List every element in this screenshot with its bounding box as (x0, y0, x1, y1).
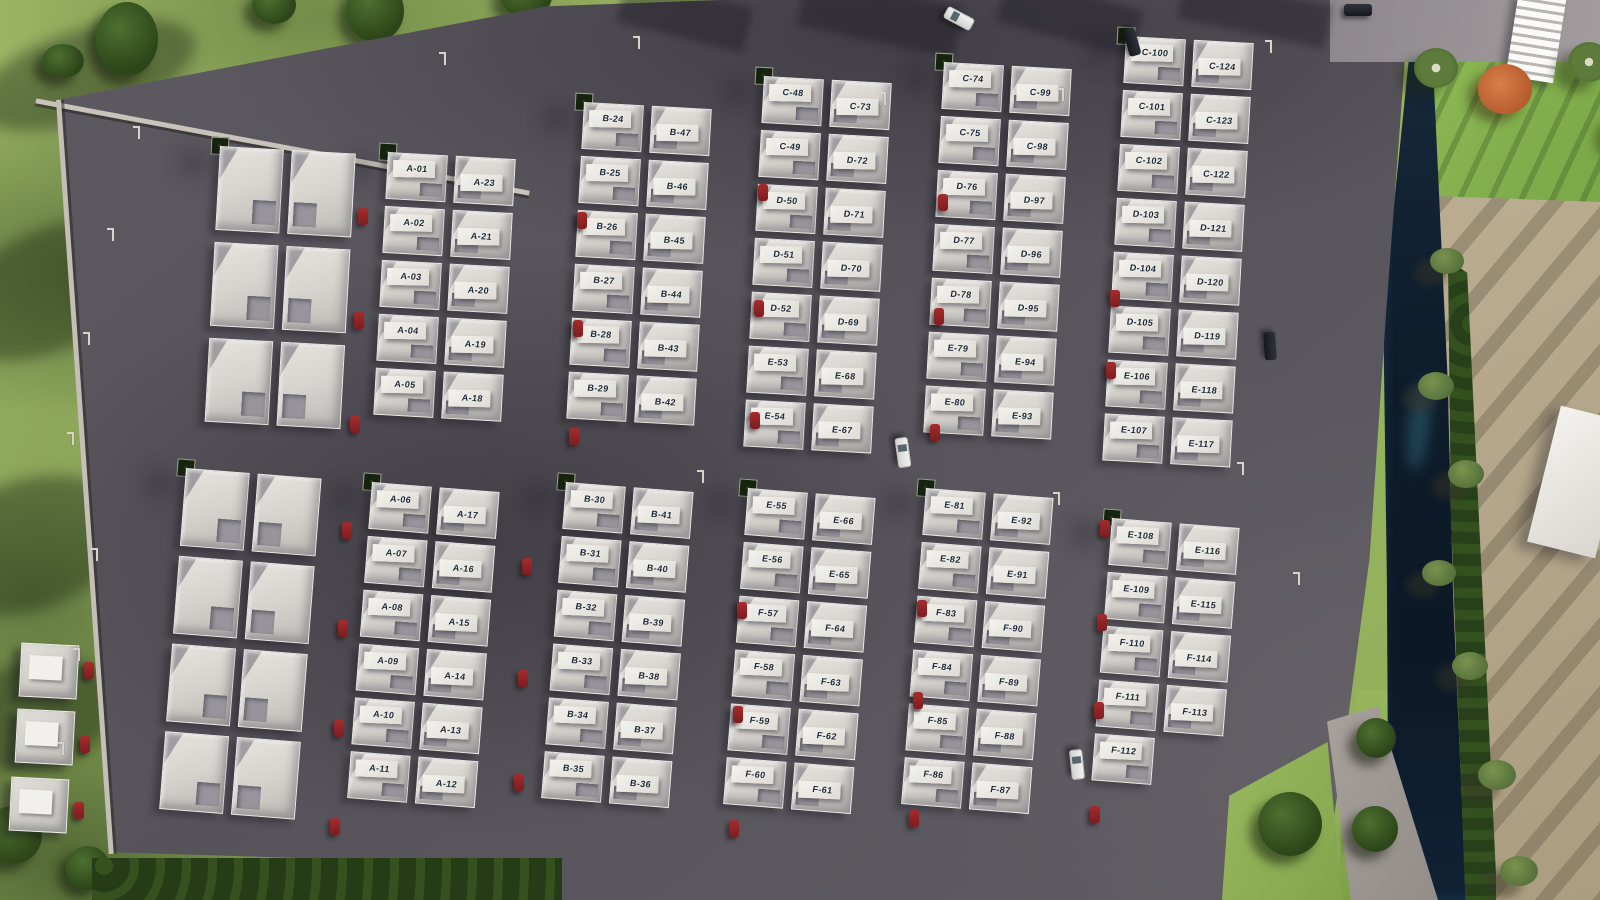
house-unit-D-95: D-95 (997, 281, 1060, 331)
roof-courtyard (410, 344, 433, 359)
house-unit-E-56: E-56 (740, 542, 804, 594)
car-red-parked (1110, 290, 1120, 307)
street-lamp (1270, 40, 1272, 53)
house-unit-C-124: C-124 (1191, 40, 1254, 90)
house-unit-B-39: B-39 (622, 595, 686, 647)
unit-label: B-43 (657, 342, 680, 353)
house-unit-F-114: F-114 (1168, 631, 1232, 683)
car-red-parked (938, 194, 948, 211)
duplex-row: E-79E-94 (926, 332, 1056, 386)
roof-courtyard (956, 519, 979, 534)
roof-courtyard (774, 573, 797, 588)
roof-courtyard (251, 200, 276, 226)
house-unit-E-79: E-79 (926, 332, 989, 382)
unit-label: D-97 (1023, 195, 1046, 206)
street-lamp (1058, 492, 1060, 505)
house-unit-D-103: D-103 (1114, 198, 1177, 248)
roof-courtyard (609, 241, 632, 256)
unit-label: C-99 (1029, 87, 1052, 98)
duplex-row: C-49D-72 (758, 130, 888, 184)
duplex-row: C-102C-122 (1117, 144, 1247, 198)
car-red-parked (84, 662, 94, 679)
unit-label: F-57 (757, 607, 779, 618)
duplex-row: D-76D-97 (935, 170, 1065, 224)
unit-label: A-02 (403, 217, 426, 228)
unit-label: B-29 (587, 383, 610, 394)
roof-courtyard (770, 627, 793, 642)
house-unit-F-58: F-58 (732, 650, 796, 702)
house-unit-B-29: B-29 (566, 372, 629, 422)
duplex-row: B-32B-39 (554, 590, 685, 647)
unit-label: A-23 (473, 177, 496, 188)
duplex-row: F-84F-89 (910, 650, 1041, 707)
duplex-row: A-09A-14 (356, 644, 487, 701)
car-red-parked (80, 736, 90, 753)
duplex-row: F-60F-61 (723, 757, 854, 814)
car-red-parked (909, 810, 919, 827)
roof-courtyard (1145, 282, 1168, 297)
unit-label: D-50 (776, 195, 799, 206)
house-unit (205, 338, 274, 425)
house-unit-B-36: B-36 (609, 757, 673, 809)
house-unit-B-42: B-42 (634, 375, 697, 425)
tree (42, 44, 84, 78)
unit-label: A-21 (470, 231, 493, 242)
site-plan-render: A-01A-23A-02A-21A-03A-20A-04A-19A-05A-18… (0, 0, 1600, 900)
unit-label: D-96 (1020, 249, 1043, 260)
unit-label: B-25 (599, 167, 622, 178)
unit-label: D-120 (1196, 276, 1224, 287)
house-unit-F-86: F-86 (901, 757, 965, 809)
house-unit-E-66: E-66 (812, 493, 876, 545)
car-red-parked (569, 428, 579, 445)
house-unit-F-113: F-113 (1163, 685, 1227, 737)
roof-courtyard (202, 694, 227, 719)
duplex-row: D-51D-70 (752, 238, 882, 292)
unit-label: A-15 (448, 616, 471, 628)
house-unit-C-122: C-122 (1185, 148, 1248, 198)
house-unit-B-25: B-25 (578, 156, 641, 206)
house-unit-A-12: A-12 (415, 757, 479, 809)
duplex-row: D-104D-120 (1111, 252, 1241, 306)
roof-courtyard (1136, 444, 1159, 459)
unit-label: F-58 (753, 661, 775, 672)
house-unit-B-43: B-43 (637, 321, 700, 371)
duplex-row (159, 731, 301, 819)
duplex-row: F-112 (1091, 733, 1222, 790)
house-unit-F-63: F-63 (799, 655, 863, 707)
house-unit-D-119: D-119 (1176, 309, 1239, 359)
duplex-row (215, 146, 355, 237)
roof-courtyard (282, 394, 307, 420)
unit-label: F-85 (927, 715, 949, 726)
unit-label: A-06 (389, 494, 412, 506)
roof-courtyard (1125, 765, 1148, 780)
house-unit-E-94: E-94 (994, 335, 1057, 385)
house-unit-E-67: E-67 (811, 403, 874, 453)
tree (1356, 718, 1396, 758)
duplex-row: E-81E-92 (922, 488, 1053, 545)
house-unit-D-120: D-120 (1179, 255, 1242, 305)
roof-courtyard (216, 519, 241, 544)
unit-label: C-75 (959, 127, 982, 138)
street-lamp (62, 742, 64, 755)
street-lamp (702, 470, 704, 483)
shrub (1500, 856, 1538, 886)
house-unit-F-64: F-64 (804, 601, 868, 653)
car-red-parked (1100, 520, 1110, 537)
duplex-row: C-74C-99 (941, 62, 1071, 116)
duplex-row (166, 643, 308, 731)
house-unit-F-111: F-111 (1096, 680, 1160, 732)
roof-courtyard (246, 296, 271, 322)
car-red-parked (934, 308, 944, 325)
unit-label: A-05 (394, 379, 417, 390)
duplex-row: A-03A-20 (379, 260, 509, 314)
roof-courtyard (786, 268, 809, 283)
roof-courtyard (209, 607, 234, 632)
unit-label: F-63 (820, 676, 842, 687)
street-lamp (88, 332, 90, 345)
roof-courtyard (243, 697, 268, 722)
roof-courtyard (780, 376, 803, 391)
roof-courtyard (413, 291, 436, 306)
house-unit-E-53: E-53 (746, 346, 809, 396)
house-unit-C-49: C-49 (758, 130, 821, 180)
car-red-parked (1090, 806, 1100, 823)
unit-label: F-111 (1115, 691, 1141, 703)
car-red-parked (74, 802, 84, 819)
car-red-parked (917, 600, 927, 617)
unit-label: E-94 (1014, 356, 1036, 367)
roof-courtyard (236, 785, 261, 810)
duplex-row: A-11A-12 (347, 751, 478, 808)
roof-courtyard (792, 161, 815, 176)
street-lamp (1298, 572, 1300, 585)
roof-courtyard (952, 573, 975, 588)
duplex-row: E-82E-91 (918, 542, 1049, 599)
house-unit-D-77: D-77 (932, 224, 995, 274)
unit-label: B-27 (593, 275, 616, 286)
duplex-row: F-57F-64 (736, 596, 867, 653)
duplex-row (210, 242, 350, 333)
house-unit-C-123: C-123 (1188, 94, 1251, 144)
house-unit-C-98: C-98 (1006, 120, 1069, 170)
roof-courtyard (600, 402, 623, 417)
unit-label: B-42 (654, 396, 677, 407)
duplex-row: A-05A-18 (373, 368, 503, 422)
house-unit-F-60: F-60 (723, 757, 787, 809)
unit-label: D-76 (956, 181, 979, 192)
shrub (1448, 460, 1484, 488)
car-red-parked (518, 670, 528, 687)
duplex-row: A-06A-17 (368, 482, 499, 539)
car-red-parked (354, 312, 364, 329)
car-red-parked (573, 320, 583, 337)
house-unit-E-118: E-118 (1173, 363, 1236, 413)
duplex-row: F-58F-63 (732, 650, 863, 707)
unit-label: A-18 (461, 392, 484, 403)
unit-label: D-121 (1199, 222, 1227, 233)
house-unit-B-30: B-30 (562, 482, 626, 534)
house-unit (166, 643, 236, 726)
car-red-parked (737, 602, 747, 619)
unit-label: A-09 (377, 655, 400, 667)
unit-label: B-47 (669, 127, 692, 138)
car-red-parked (514, 774, 524, 791)
unit-label: C-122 (1202, 168, 1230, 179)
roof-courtyard (969, 201, 992, 216)
house-unit-D-121: D-121 (1182, 202, 1245, 252)
duplex-row: E-55E-66 (744, 488, 875, 545)
unit-label: E-56 (761, 553, 783, 565)
duplex-row: D-50D-71 (755, 184, 885, 238)
duplex-row: C-101C-123 (1120, 90, 1250, 144)
house-unit-A-07: A-07 (364, 536, 428, 588)
duplex-row: B-28B-43 (569, 318, 699, 372)
duplex-row: B-25B-46 (578, 156, 708, 210)
house-unit-E-81: E-81 (922, 488, 986, 540)
house-unit-A-05: A-05 (373, 368, 436, 418)
unit-label: C-48 (782, 87, 805, 98)
unit-label: D-70 (840, 263, 863, 274)
house-unit (282, 246, 351, 333)
roof-courtyard (1151, 175, 1174, 190)
house-unit (215, 146, 284, 233)
duplex-row: A-08A-15 (360, 590, 491, 647)
car-red-parked (733, 706, 743, 723)
unit-label: C-101 (1138, 101, 1166, 112)
shrub (1452, 652, 1488, 680)
unit-label: B-46 (666, 181, 689, 192)
roof-courtyard (398, 567, 421, 582)
roof-courtyard (402, 513, 425, 528)
house-unit-C-48: C-48 (761, 76, 824, 126)
house-unit-B-31: B-31 (558, 536, 622, 588)
house-unit-F-110: F-110 (1100, 626, 1164, 678)
house-unit-B-41: B-41 (630, 487, 694, 539)
roof-courtyard (603, 348, 626, 363)
unit-label: D-119 (1194, 330, 1222, 341)
house-unit-E-115: E-115 (1172, 577, 1236, 629)
shrub (1430, 248, 1464, 274)
house-unit-B-33: B-33 (550, 644, 614, 696)
house-unit-F-88: F-88 (973, 709, 1037, 761)
unit-label: D-105 (1126, 317, 1154, 328)
roof-courtyard (795, 107, 818, 122)
car-red-parked (754, 300, 764, 317)
house-unit-B-27: B-27 (572, 264, 635, 314)
roof-courtyard (583, 675, 606, 690)
house-unit (276, 342, 345, 429)
mini-house (19, 643, 80, 700)
house-unit-D-96: D-96 (1000, 228, 1063, 278)
house-unit-D-97: D-97 (1003, 174, 1066, 224)
unit-label: D-69 (837, 316, 860, 327)
house-unit-D-51: D-51 (752, 238, 815, 288)
roof-courtyard (789, 215, 812, 230)
house-unit-A-21: A-21 (450, 210, 513, 260)
street-lamp (96, 548, 98, 561)
duplex-row: E-80E-93 (923, 385, 1053, 439)
roof-courtyard (960, 362, 983, 377)
roof-courtyard (596, 513, 619, 528)
unit-label: A-16 (452, 563, 475, 575)
roof-courtyard (966, 254, 989, 269)
unit-label: E-116 (1194, 545, 1221, 557)
unit-label: C-49 (779, 141, 802, 152)
unit-label: E-109 (1123, 583, 1151, 595)
house-unit-E-91: E-91 (986, 547, 1050, 599)
street-lamp (78, 648, 80, 661)
roof-courtyard (1142, 336, 1165, 351)
unit-label: D-71 (843, 209, 866, 220)
unit-label: B-40 (646, 563, 669, 575)
unit-label: F-84 (931, 661, 953, 672)
street-lamp (138, 126, 140, 139)
duplex-row: D-105D-119 (1108, 306, 1238, 360)
roof-courtyard (1138, 603, 1161, 618)
car-red-parked (1097, 614, 1107, 631)
house-unit-B-35: B-35 (541, 751, 605, 803)
house-unit-B-40: B-40 (626, 541, 690, 593)
car-red-parked (729, 820, 739, 837)
roof-courtyard (939, 735, 962, 750)
unit-label: C-102 (1135, 155, 1163, 166)
duplex-row: F-83F-90 (914, 596, 1045, 653)
unit-label: F-89 (998, 676, 1020, 687)
unit-label: C-100 (1141, 47, 1169, 58)
roof-courtyard (948, 627, 971, 642)
house-unit (238, 649, 308, 732)
car-red-parked (522, 558, 532, 575)
house-unit-A-09: A-09 (356, 644, 420, 696)
street-lamp (638, 36, 640, 49)
car-red-parked (342, 522, 352, 539)
car-red-parked (358, 208, 368, 225)
house-unit-B-34: B-34 (545, 697, 609, 749)
roof-courtyard (575, 783, 598, 798)
unit-label: B-39 (642, 616, 665, 628)
unit-label: C-124 (1208, 61, 1236, 72)
unit-label: F-113 (1182, 706, 1209, 718)
house-unit-C-101: C-101 (1120, 90, 1183, 140)
duplex-row: D-103D-121 (1114, 198, 1244, 252)
car-red-parked (350, 416, 360, 433)
tree (1352, 806, 1398, 852)
roof-courtyard (250, 610, 275, 635)
duplex-row: C-75C-98 (938, 116, 1068, 170)
roof-courtyard (943, 681, 966, 696)
unit-label: D-104 (1129, 263, 1157, 274)
roof-courtyard (765, 681, 788, 696)
roof-courtyard (292, 202, 317, 228)
shrub (1422, 560, 1456, 586)
unit-label: B-28 (590, 329, 613, 340)
unit-label: B-38 (638, 670, 661, 682)
house-unit-B-38: B-38 (617, 649, 681, 701)
duplex-row (180, 468, 322, 556)
house-unit-B-24: B-24 (581, 102, 644, 152)
unit-label: A-03 (400, 271, 423, 282)
roof-courtyard (257, 522, 282, 547)
roof-courtyard (963, 308, 986, 323)
unit-label: C-123 (1205, 115, 1233, 126)
unit-label: E-81 (944, 500, 966, 512)
house-unit-C-102: C-102 (1117, 144, 1180, 194)
house-unit-A-18: A-18 (441, 371, 504, 421)
unit-label: B-44 (660, 289, 683, 300)
house-unit-A-02: A-02 (382, 206, 445, 256)
unit-label: E-55 (766, 500, 788, 512)
car-red-parked (334, 720, 344, 737)
duplex-row: D-77D-96 (932, 224, 1062, 278)
unit-label: E-80 (944, 397, 966, 408)
house-unit-B-47: B-47 (649, 106, 712, 156)
unit-label: E-91 (1006, 569, 1028, 581)
duplex-row: E-106E-118 (1105, 359, 1235, 413)
unit-label: F-90 (1002, 622, 1024, 633)
house-unit-E-92: E-92 (990, 493, 1054, 545)
house-unit-A-15: A-15 (428, 595, 492, 647)
house-unit (173, 556, 243, 639)
bottom-hedge (92, 858, 562, 900)
unit-label: A-01 (406, 163, 429, 174)
unit-label: F-114 (1186, 652, 1213, 664)
unit-label: F-87 (990, 784, 1012, 795)
unit-label: D-52 (770, 303, 793, 314)
roof-courtyard (972, 147, 995, 162)
unit-label: D-95 (1017, 302, 1040, 313)
car-red-parked (750, 412, 760, 429)
street-lamp (1242, 462, 1244, 475)
roof-courtyard (592, 567, 615, 582)
house-unit-A-08: A-08 (360, 590, 424, 642)
house-unit-B-45: B-45 (643, 214, 706, 264)
house-unit-E-93: E-93 (991, 389, 1054, 439)
house-unit-A-11: A-11 (347, 751, 411, 803)
unit-label: A-12 (435, 778, 458, 790)
house-unit-E-116: E-116 (1176, 523, 1240, 575)
unit-label: E-54 (764, 411, 786, 422)
duplex-row: F-111F-113 (1096, 680, 1227, 737)
street-lamp (1062, 88, 1064, 101)
roof-courtyard (407, 398, 430, 413)
car-red-parked (330, 818, 340, 835)
house-unit-F-62: F-62 (795, 709, 859, 761)
unit-label: A-13 (439, 724, 462, 736)
duplex-row: B-30B-41 (562, 482, 693, 539)
roof-courtyard (1148, 228, 1171, 243)
house-unit-F-87: F-87 (969, 763, 1033, 815)
street-lamp (884, 92, 886, 105)
house-unit-D-69: D-69 (817, 295, 880, 345)
unit-label: E-93 (1011, 410, 1033, 421)
unit-label: E-53 (767, 357, 789, 368)
roof-courtyard (777, 430, 800, 445)
roof-courtyard (615, 133, 638, 148)
unit-label: B-35 (562, 763, 585, 775)
car-dark (1344, 4, 1372, 16)
duplex-row: D-52D-69 (749, 292, 879, 346)
duplex-row: E-109E-115 (1104, 572, 1235, 629)
duplex-row: F-59F-62 (727, 703, 858, 760)
duplex-row (205, 338, 345, 429)
unit-label: E-65 (828, 569, 850, 581)
unit-label: F-83 (935, 607, 957, 618)
roof-courtyard (588, 621, 611, 636)
unit-label: E-92 (1011, 515, 1033, 527)
